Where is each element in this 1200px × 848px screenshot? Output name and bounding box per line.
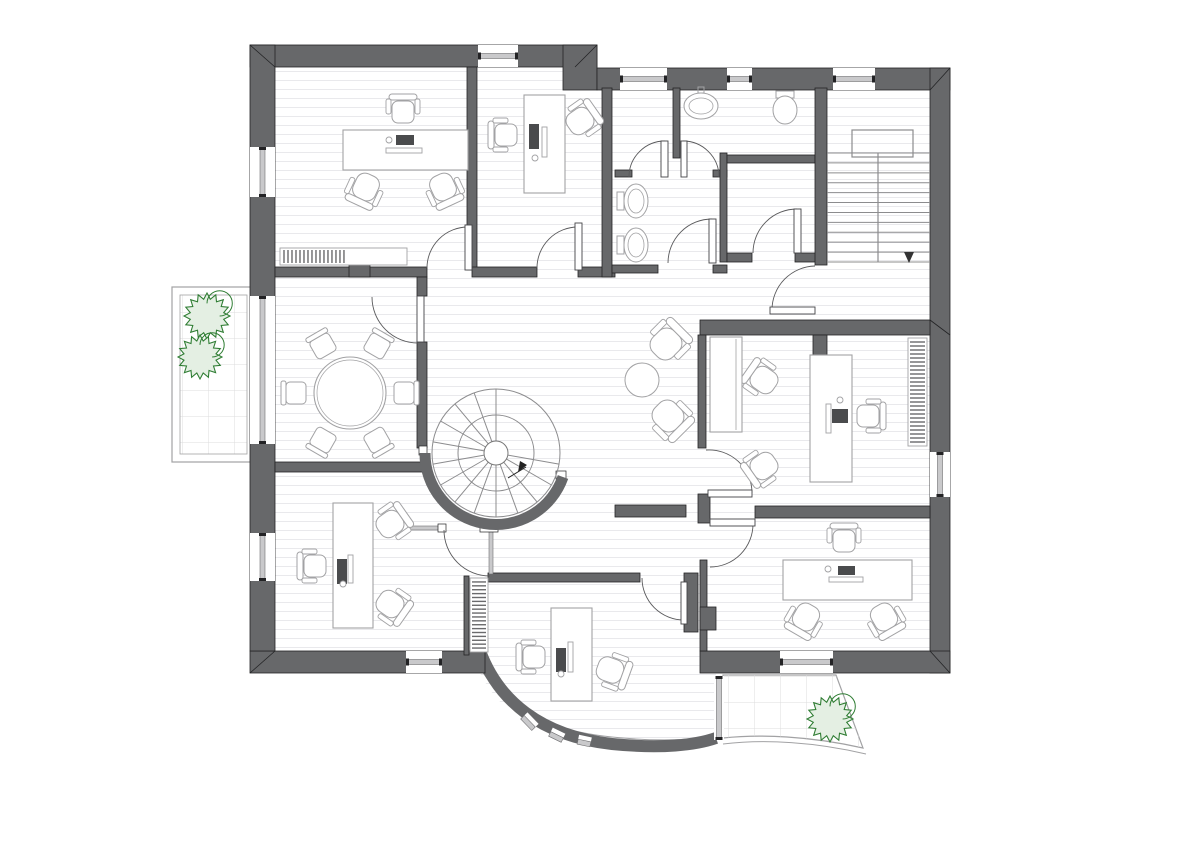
mouse [825,566,831,572]
wall [698,335,706,448]
meeting-chair [281,381,306,405]
door-leaf [681,141,687,177]
door-leaf [465,225,472,270]
door-leaf [661,141,668,177]
wall [673,88,680,158]
wall [700,607,716,630]
toilet [773,91,797,124]
door-leaf [770,307,815,314]
keyboard [348,555,353,583]
mouse [558,671,564,677]
window [727,68,752,90]
mouse [386,137,392,143]
door-leaf [575,223,582,270]
wall [700,560,707,651]
monitor [556,648,566,672]
monitor [838,566,855,575]
bookshelf [280,248,407,265]
meeting-chair [394,381,419,405]
wall [488,573,640,582]
wall [930,68,950,673]
bookshelf [470,578,488,652]
keyboard [386,148,422,153]
wall [417,277,427,296]
monitor [832,409,848,423]
wall [602,88,612,277]
wall [727,155,815,163]
window [250,296,275,444]
floor-plan-canvas [0,0,1200,848]
door-leaf [681,582,687,624]
wall [698,494,710,523]
wall [700,320,930,335]
wall [815,88,827,265]
window [250,533,275,581]
mouse [532,155,538,161]
wall [250,45,597,67]
door-leaf [709,219,716,263]
door-leaf [710,519,755,526]
wall [720,153,727,262]
door-leaf [794,209,801,253]
window [406,651,442,673]
side-table [625,363,659,397]
monitor [529,124,539,149]
window [478,45,518,67]
window [930,452,950,497]
wall [713,265,727,273]
bookshelf [908,338,927,446]
keyboard [542,127,547,157]
wall [563,45,597,90]
wall [275,462,423,472]
wall [464,576,469,655]
window [620,68,667,90]
wall [612,265,658,273]
wall [472,267,537,277]
keyboard [568,642,573,672]
wall [755,506,930,518]
monitor [396,135,414,145]
window [714,676,724,740]
mouse [837,397,843,403]
partition [489,531,493,574]
mouse [340,581,346,587]
spiral-hub [484,441,508,465]
monitor [337,559,347,584]
window [250,147,275,197]
wall [250,651,485,673]
keyboard [826,404,831,433]
window [780,651,833,673]
sideboard [710,337,742,432]
wall [813,335,827,355]
wall [615,505,686,517]
door-leaf [417,296,424,342]
meeting-table [314,357,386,429]
floor-plan-page [0,0,1200,848]
window [833,68,875,90]
keyboard [829,577,863,582]
door-leaf [708,490,752,497]
wall [727,253,752,262]
wall-cap [438,524,446,532]
